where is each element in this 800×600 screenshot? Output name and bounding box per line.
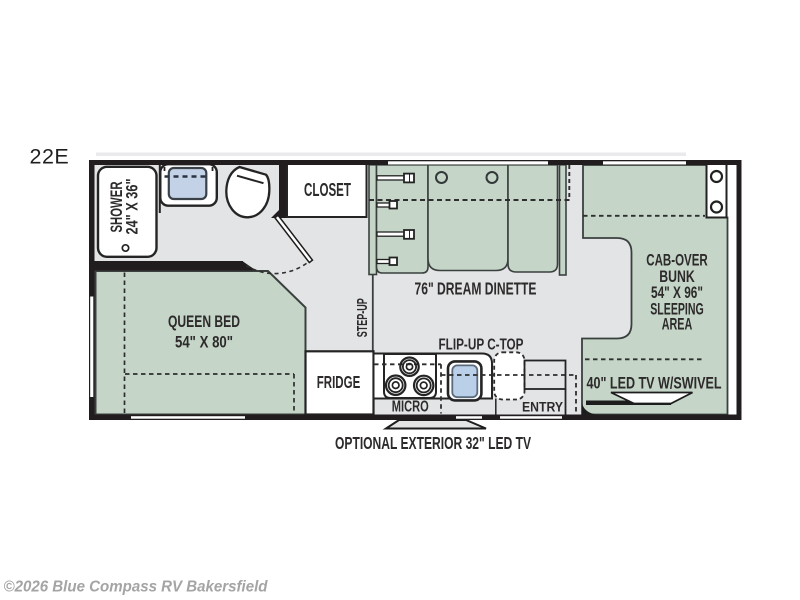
svg-text:76" DREAM DINETTE: 76" DREAM DINETTE (415, 278, 537, 298)
svg-text:54" X 80": 54" X 80" (175, 333, 233, 351)
svg-text:AREA: AREA (662, 316, 693, 334)
svg-text:CLOSET: CLOSET (304, 180, 351, 200)
svg-text:ENTRY: ENTRY (522, 400, 563, 416)
svg-text:FRIDGE: FRIDGE (317, 372, 361, 392)
svg-text:STEP-UP: STEP-UP (354, 298, 371, 337)
svg-text:MICRO: MICRO (392, 398, 429, 415)
svg-text:©2026 Blue Compass RV Bakersfi: ©2026 Blue Compass RV Bakersfield (4, 579, 269, 596)
svg-text:OPTIONAL EXTERIOR 32" LED TV: OPTIONAL EXTERIOR 32" LED TV (335, 433, 531, 453)
svg-text:54" X 96": 54" X 96" (651, 284, 703, 302)
svg-text:24" X 36": 24" X 36" (124, 179, 142, 235)
svg-text:40" LED TV W/SWIVEL: 40" LED TV W/SWIVEL (587, 374, 722, 392)
svg-text:QUEEN BED: QUEEN BED (168, 313, 240, 331)
svg-text:22E: 22E (30, 145, 70, 169)
svg-text:CAB-OVER: CAB-OVER (646, 252, 708, 270)
svg-text:FLIP-UP C-TOP: FLIP-UP C-TOP (439, 336, 524, 353)
